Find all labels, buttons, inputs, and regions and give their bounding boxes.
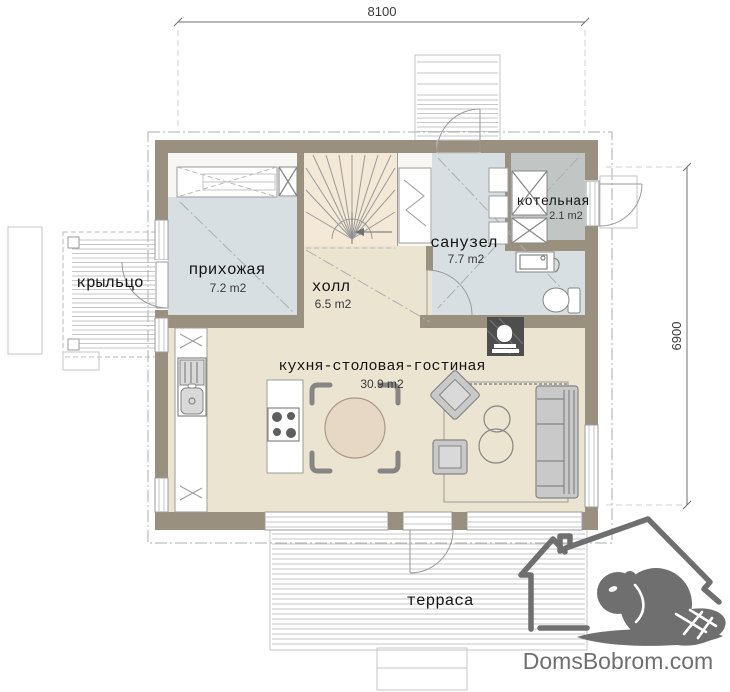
hall-area: 6.5 m2	[315, 297, 352, 311]
bathroom-shelf-2	[489, 196, 508, 218]
terrace-label: терраса	[406, 592, 474, 610]
terrace-pillar-right	[452, 512, 467, 530]
porch-label: крыльцо	[76, 274, 143, 292]
window-terrace-1	[265, 512, 388, 530]
window-kitchen-left-1	[155, 318, 168, 352]
window-terrace-2	[467, 512, 582, 530]
kitchen-living-area: 30.9 m2	[360, 377, 404, 391]
stair-side-cabinet	[399, 168, 431, 243]
dimension-width-label: 8100	[368, 4, 397, 19]
structural-column	[279, 167, 297, 196]
hallway-area: 7.2 m2	[210, 281, 247, 295]
bathroom-sink	[516, 252, 559, 272]
bathroom-shelf-1	[489, 168, 508, 192]
bathroom-label: санузел	[430, 234, 497, 252]
kitchen-island	[267, 380, 303, 473]
toilet	[543, 288, 580, 313]
hallway-label: прихожая	[189, 261, 266, 279]
kitchen-living-label: кухня-столовая-гостиная	[278, 358, 485, 375]
floor-plan-page: 8100 6900	[0, 0, 730, 692]
window-living-right	[585, 425, 598, 507]
boiler-label: котельная	[517, 195, 590, 210]
dimension-height-label: 6900	[669, 322, 684, 351]
window-hallway-left	[155, 220, 168, 260]
bathroom-area: 7.7 m2	[448, 252, 485, 266]
hall-label: холл	[312, 278, 350, 296]
armchair-2	[433, 440, 467, 474]
hallway-wardrobe	[177, 167, 277, 197]
floor-plan-drawing: 8100 6900	[0, 0, 730, 692]
fireplace	[487, 317, 524, 356]
window-kitchen-left-2	[155, 478, 168, 512]
logo-text: DomsBobrom.com	[523, 648, 713, 674]
sofa	[536, 386, 578, 498]
boiler-area: 2.1 m2	[549, 210, 583, 222]
kitchen-counter	[175, 328, 207, 512]
terrace-pillar-left	[388, 512, 403, 530]
